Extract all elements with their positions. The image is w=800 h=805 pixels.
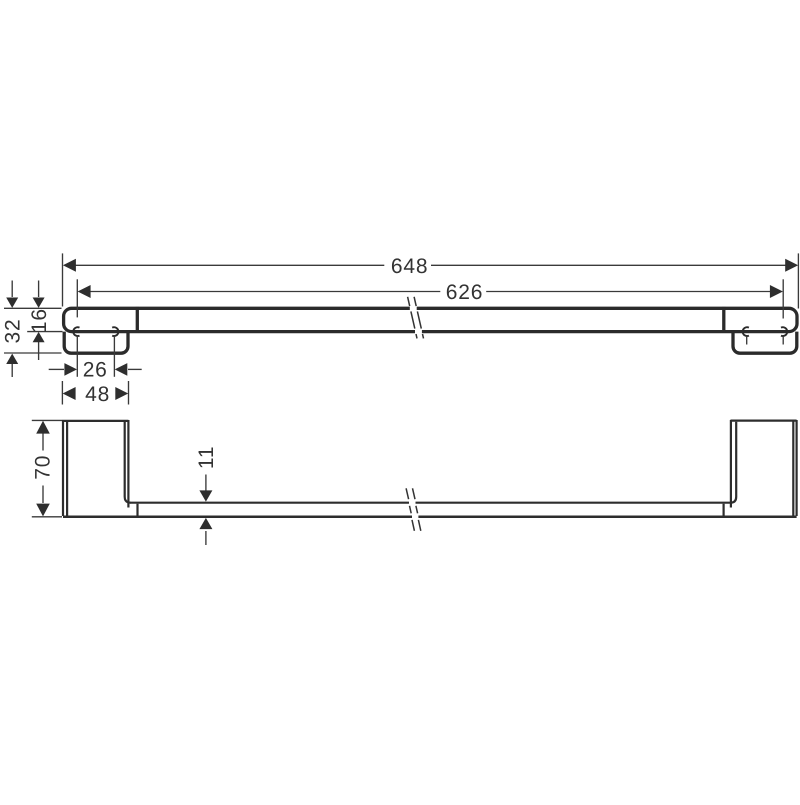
- svg-text:648: 648: [391, 255, 428, 278]
- svg-text:26: 26: [83, 358, 108, 381]
- svg-text:32: 32: [2, 319, 25, 344]
- svg-text:11: 11: [195, 446, 218, 469]
- svg-text:16: 16: [28, 308, 51, 333]
- svg-text:70: 70: [32, 455, 55, 480]
- svg-text:626: 626: [446, 281, 483, 304]
- svg-text:48: 48: [85, 383, 110, 406]
